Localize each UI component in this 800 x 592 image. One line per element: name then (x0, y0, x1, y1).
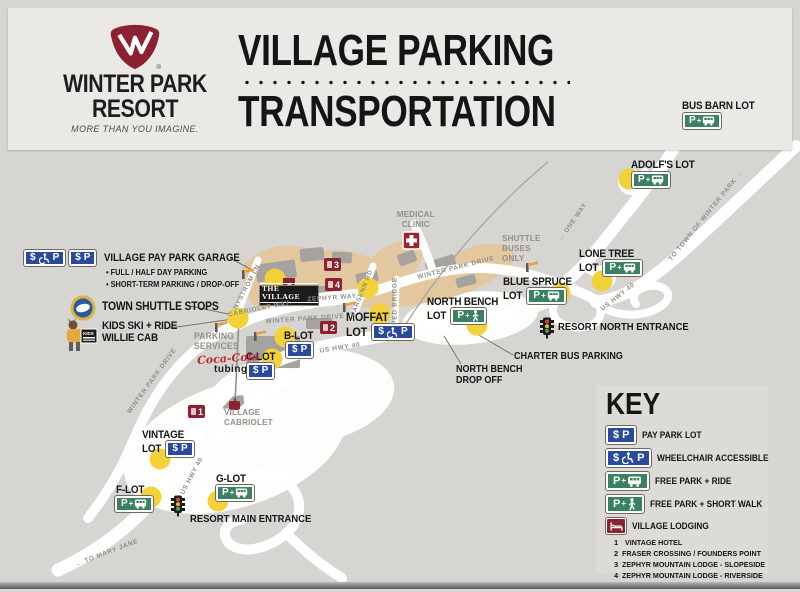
key-title: KEY (606, 387, 744, 421)
bus-barn-park-ride-badge: P+ (683, 113, 721, 129)
adolfs-lot-label: ADOLF'S LOT (631, 159, 695, 171)
wheelchair-icon (39, 253, 50, 264)
g-lot-park-ride-badge: P+ (216, 485, 254, 501)
pay-badge: $ P (69, 250, 96, 266)
traffic-light-main-icon (171, 496, 185, 517)
p-glyph: P (53, 252, 60, 264)
pay-garage-badges: $ P $ P (24, 250, 96, 266)
lodging-marker-3: 3 (324, 258, 341, 271)
title-line-1: VILLAGE PARKING (238, 28, 526, 74)
brand-tagline: MORE THAN YOU IMAGINE. (44, 124, 226, 134)
f-lot-label: F-LOT (116, 484, 144, 496)
lodging-marker-1: 1 (188, 405, 205, 418)
title-dotted-divider (240, 80, 570, 85)
bus-icon (235, 488, 248, 498)
medical-cross-icon (403, 232, 420, 249)
wheelchair-icon (622, 452, 634, 464)
lone-tree-park-ride-badge: P+ (603, 260, 641, 276)
brand-name-bottom: RESORT (58, 97, 213, 121)
moffat-pay-wheelchair-badge: $ P (372, 324, 413, 340)
garage-bullet-2: • SHORT-TERM PARKING / DROP-OFF (106, 280, 239, 289)
charter-bus-parking-label: CHARTER BUS PARKING (514, 351, 623, 362)
lodging-row-3: 3ZEPHYR MOUNTAIN LODGE - SLOPESIDE (614, 559, 768, 570)
p-glyph: P (84, 252, 91, 264)
road-winter-park-drive-east: WINTER PARK DRIVE (417, 255, 495, 281)
bus-icon (134, 499, 147, 509)
bed-icon (610, 522, 623, 531)
north-bench-drop-off-label: NORTH BENCHDROP OFF (456, 364, 523, 386)
map-key-panel: KEY $P PAY PARK LOT $ P WHEELCHAIR ACCES… (596, 385, 768, 573)
b-lot-label: B-LOT (284, 330, 313, 342)
road-one-way: ← ONE WAY (557, 202, 588, 243)
key-item-lodging: VILLAGE LODGING (606, 518, 768, 534)
lodging-row-4: 4ZEPHYR MOUNTAIN LODGE - RIVERSIDE (614, 570, 768, 581)
garage-bullet-1: • FULL / HALF DAY PARKING (106, 268, 207, 277)
road-ped-bridge: PED BRIDGE (392, 277, 399, 324)
road-us-hwy-40-east: US HWY 40 (600, 282, 637, 313)
page-title: VILLAGE PARKING TRANSPORTATION (238, 28, 598, 135)
village-cabriolet-label: VILLAGECABRIOLET (224, 407, 273, 427)
kids-ski-ride-label: KIDS SKI + RIDE (102, 320, 177, 332)
lodging-row-1: 1VINTAGE HOTEL (614, 537, 768, 548)
wp-shield-icon: ® (106, 22, 164, 72)
key-item-park-ride: P+ FREE PARK + RIDE (606, 472, 768, 490)
resort-logo: ® WINTER PARK RESORT MORE THAN YOU IMAGI… (44, 22, 226, 134)
road-to-town-of-winter-park: TO TOWN OF WINTER PARK → (668, 170, 745, 263)
vintage-pay-badge: $P (166, 441, 193, 457)
north-bench-park-walk-badge: P+ (451, 308, 485, 324)
pay-badge: $P (606, 426, 636, 444)
park-ride-badge: P+ (606, 472, 649, 490)
north-bench-lot-label: NORTH BENCH (427, 296, 498, 308)
willie-cab-label: WILLIE CAB (102, 332, 158, 344)
north-bench-lot-row: LOT P+ (427, 308, 486, 324)
header-band: ® WINTER PARK RESORT MORE THAN YOU IMAGI… (8, 8, 792, 150)
moffat-lot-row: LOT $ P (346, 324, 414, 340)
resort-main-entrance-label: RESORT MAIN ENTRANCE (190, 513, 311, 525)
bus-icon (547, 291, 560, 301)
adolfs-park-ride-badge: P+ (632, 172, 670, 188)
traffic-light-north-icon (540, 318, 554, 339)
road-us-hwy-40-village: US HWY 40 (319, 341, 361, 354)
lodging-marker-4: 4 (325, 278, 342, 291)
road-to-mary-jane: ← TO MARY JANE (75, 538, 140, 568)
bus-icon (702, 116, 715, 126)
resort-north-entrance-label: RESORT NORTH ENTRANCE (558, 321, 689, 333)
dollar-glyph: $ (30, 252, 36, 264)
walker-icon (471, 310, 480, 322)
tubing-label: tubing (214, 364, 248, 375)
title-line-2: TRANSPORTATION (238, 89, 526, 135)
lodging-row-2: 2FRASER CROSSING / FOUNDERS POINT (614, 548, 768, 559)
bus-icon (627, 476, 642, 487)
walker-icon (627, 498, 637, 511)
bus-barn-lot-label: BUS BARN LOT (682, 100, 755, 112)
bus-icon (651, 175, 664, 185)
blue-spruce-park-ride-badge: P+ (527, 288, 565, 304)
lodging-marker-2: 2 (320, 321, 337, 334)
park-walk-badge: P+ (606, 495, 644, 513)
lone-tree-lot-row: LOT P+ (579, 260, 642, 276)
bus-icon (623, 263, 636, 273)
blue-spruce-lot-label: BLUE SPRUCE (503, 276, 572, 288)
vintage-lot-row: LOT $P (142, 441, 194, 457)
village-parking-map: ® WINTER PARK RESORT MORE THAN YOU IMAGI… (0, 0, 800, 589)
key-item-park-walk: P+ FREE PARK + SHORT WALK (606, 495, 768, 513)
key-item-wheelchair: $ P WHEELCHAIR ACCESSIBLE (606, 449, 768, 467)
svg-text:KIDS: KIDS (83, 331, 94, 336)
willie-cab-mascot-icon: KIDS (60, 314, 100, 354)
shuttle-buses-only-label: SHUTTLEBUSESONLY (502, 233, 541, 263)
town-shuttle-label: TOWN SHUTTLE STOPS (102, 301, 219, 313)
f-lot-park-ride-badge: P+ (115, 496, 153, 512)
blue-spruce-lot-row: LOT P+ (503, 288, 566, 304)
parking-services-label: PARKINGSERVICES (194, 331, 239, 351)
dollar-glyph: $ (75, 252, 81, 264)
garage-legend-title: VILLAGE PAY PARK GARAGE (104, 252, 240, 264)
road-us-hwy-40-south: US HWY 40 (179, 456, 205, 496)
key-item-pay: $P PAY PARK LOT (606, 426, 768, 444)
wheelchair-icon (387, 327, 398, 338)
bottom-edge-shade (0, 582, 800, 589)
g-lot-label: G-LOT (216, 473, 246, 485)
lodging-bed-badge (606, 518, 626, 534)
pay-wheelchair-badge: $ P (606, 449, 651, 467)
brand-name-top: WINTER PARK (58, 72, 213, 97)
lone-tree-lot-label: LONE TREE (579, 248, 634, 260)
vintage-lot-label: VINTAGE (142, 429, 184, 441)
c-lot-pay-badge: $P (247, 363, 274, 379)
pay-wheelchair-badge: $ P (24, 250, 65, 266)
road-winter-park-drive-west: WINTER PARK DRIVE (126, 347, 178, 415)
b-lot-pay-badge: $P (286, 342, 313, 358)
medical-clinic-label: MEDICALCLINIC (392, 209, 440, 229)
